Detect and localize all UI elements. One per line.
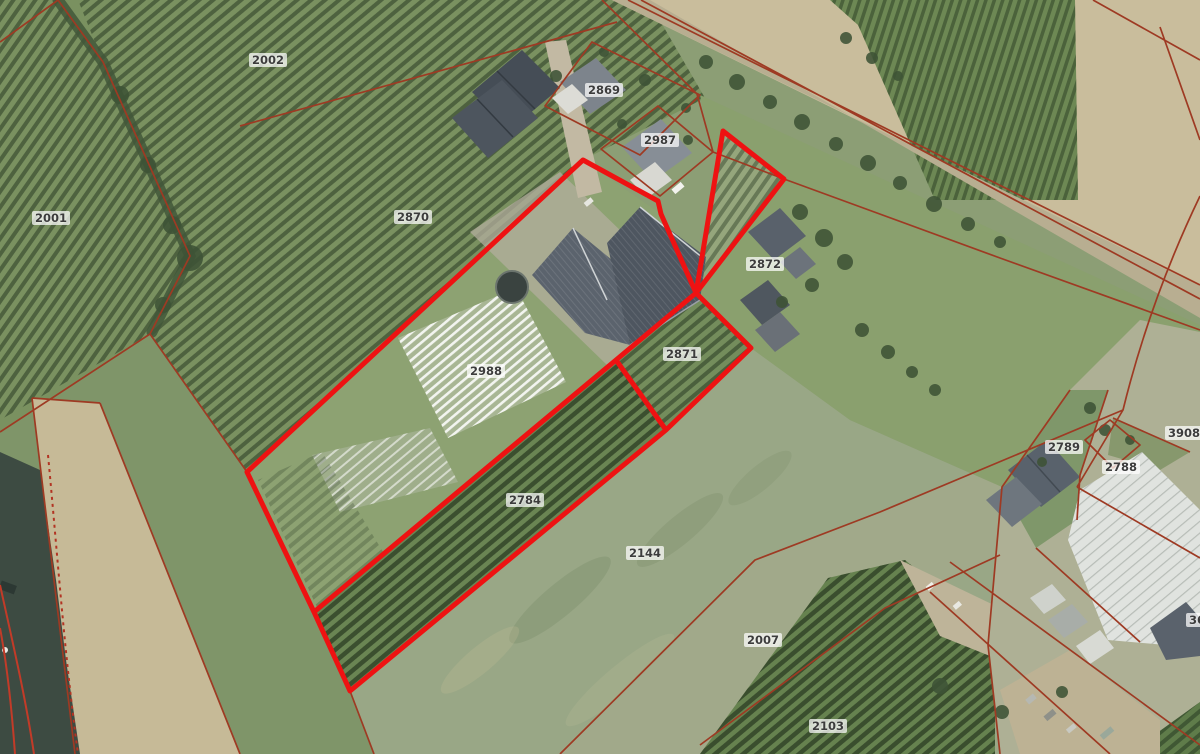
- map-canvas[interactable]: 2002286929872001287028722871298839082789…: [0, 0, 1200, 754]
- aerial-imagery: [0, 0, 1200, 754]
